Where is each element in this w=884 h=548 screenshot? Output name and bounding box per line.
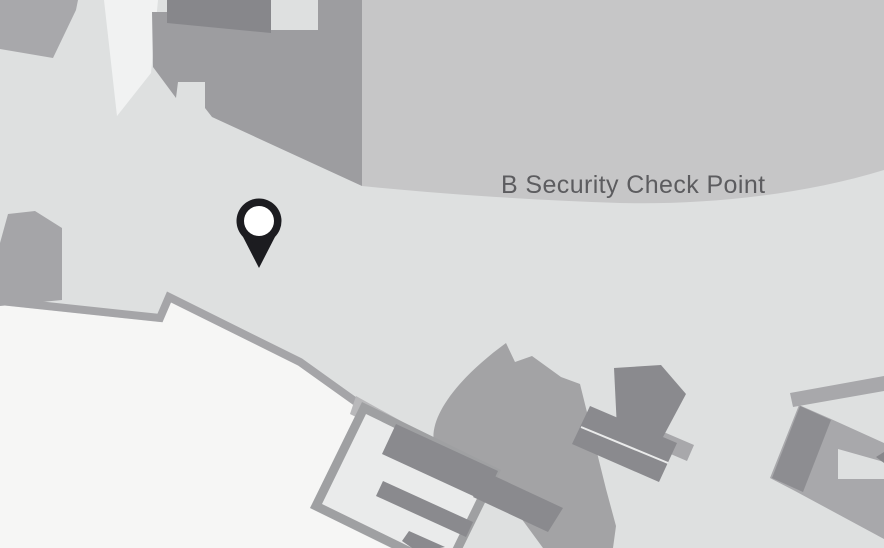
- building-left-mid: [0, 211, 62, 306]
- map-area-label: B Security Check Point: [501, 171, 765, 200]
- map-viewport[interactable]: B Security Check Point: [0, 0, 884, 548]
- map-shapes: [0, 0, 884, 548]
